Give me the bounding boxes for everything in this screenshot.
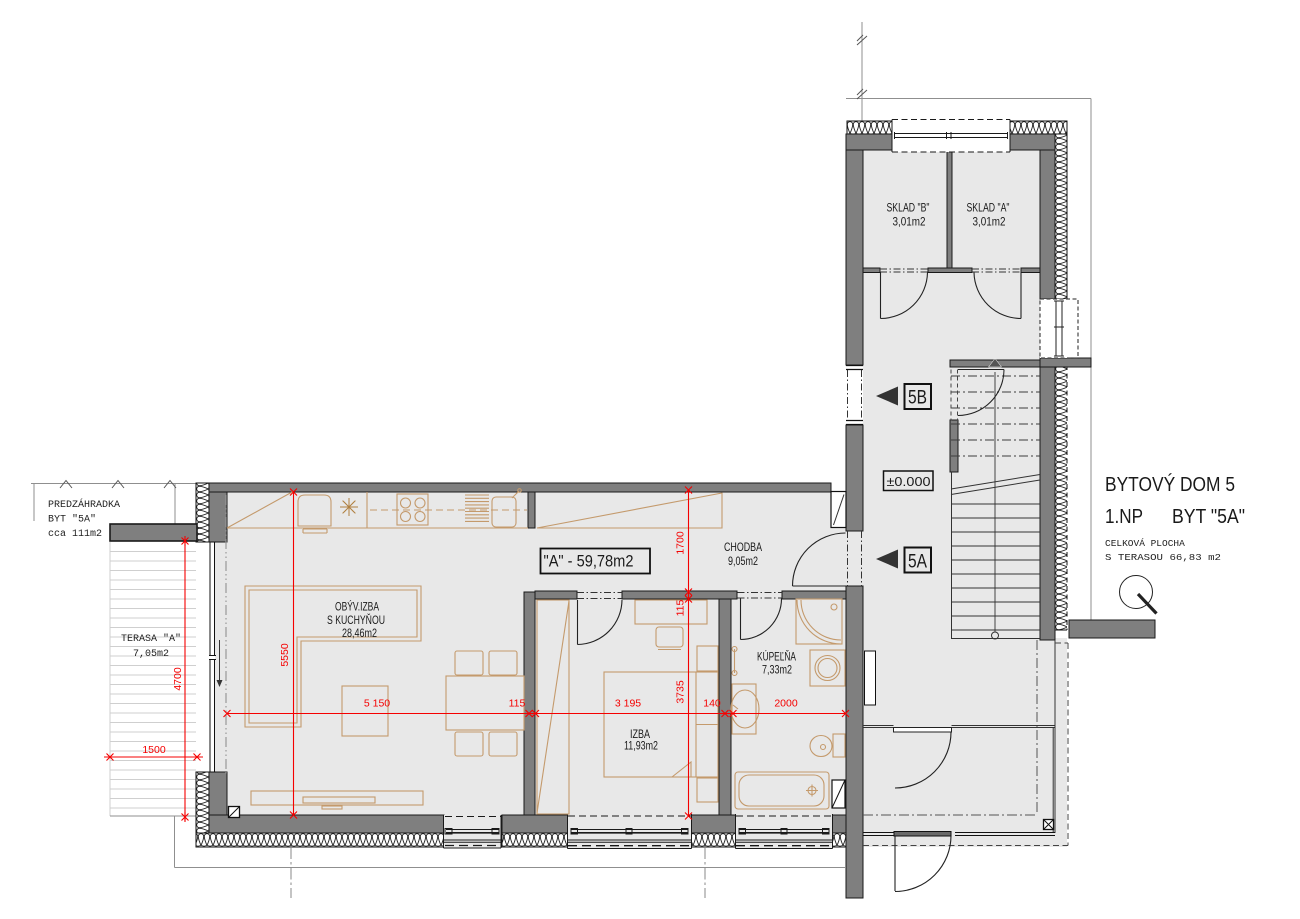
svg-text:3,01m2: 3,01m2 xyxy=(973,215,1006,229)
svg-text:1500: 1500 xyxy=(142,744,166,756)
svg-text:1.NP: 1.NP xyxy=(1105,505,1143,528)
svg-text:5 150: 5 150 xyxy=(364,698,390,710)
svg-text:"A" - 59,78m2: "A" - 59,78m2 xyxy=(544,553,634,571)
svg-text:TERASA "A": TERASA "A" xyxy=(121,633,181,645)
svg-text:SKLAD "A": SKLAD "A" xyxy=(967,201,1010,215)
svg-text:9,05m2: 9,05m2 xyxy=(728,554,758,568)
svg-text:4700: 4700 xyxy=(172,667,184,691)
svg-text:140: 140 xyxy=(703,698,721,710)
svg-text:5A: 5A xyxy=(908,552,927,573)
svg-text:S KUCHYŇOU: S KUCHYŇOU xyxy=(327,612,385,627)
svg-text:5550: 5550 xyxy=(279,643,291,667)
svg-text:BYT "5A": BYT "5A" xyxy=(48,514,96,526)
svg-text:7,05m2: 7,05m2 xyxy=(133,649,169,660)
svg-text:3,01m2: 3,01m2 xyxy=(893,215,926,229)
svg-text:3735: 3735 xyxy=(675,680,687,704)
svg-text:7,33m2: 7,33m2 xyxy=(762,663,792,677)
svg-text:PREDZÁHRADKA: PREDZÁHRADKA xyxy=(48,497,120,511)
svg-text:3 195: 3 195 xyxy=(615,698,641,710)
svg-text:28,46m2: 28,46m2 xyxy=(342,626,377,640)
svg-text:CHODBA: CHODBA xyxy=(724,540,762,554)
svg-text:2000: 2000 xyxy=(774,698,798,710)
svg-text:KÚPEĽŇA: KÚPEĽŇA xyxy=(757,649,796,664)
svg-text:cca 111m2: cca 111m2 xyxy=(48,529,102,540)
svg-text:5B: 5B xyxy=(908,388,927,409)
svg-text:11,93m2: 11,93m2 xyxy=(624,739,658,753)
svg-text:1700: 1700 xyxy=(675,531,687,555)
svg-text:OBÝV.IZBA: OBÝV.IZBA xyxy=(335,599,379,614)
svg-text:±0.000: ±0.000 xyxy=(887,475,931,489)
svg-text:BYTOVÝ DOM 5: BYTOVÝ DOM 5 xyxy=(1105,473,1235,496)
svg-text:115: 115 xyxy=(675,599,687,616)
svg-text:BYT "5A": BYT "5A" xyxy=(1172,505,1245,528)
svg-text:SKLAD "B": SKLAD "B" xyxy=(887,201,930,215)
svg-text:S TERASOU 66,83 m2: S TERASOU 66,83 m2 xyxy=(1105,552,1221,563)
svg-text:CELKOVÁ PLOCHA: CELKOVÁ PLOCHA xyxy=(1105,538,1185,549)
svg-text:115: 115 xyxy=(509,698,526,710)
